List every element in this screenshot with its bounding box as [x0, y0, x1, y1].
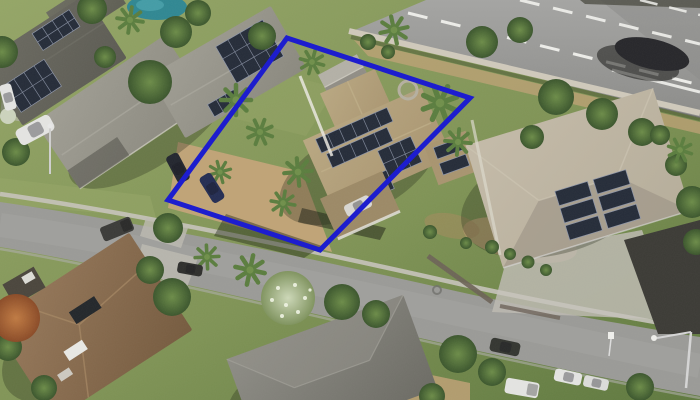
aerial-photo — [0, 0, 700, 400]
aerial-screenshot — [0, 0, 700, 400]
